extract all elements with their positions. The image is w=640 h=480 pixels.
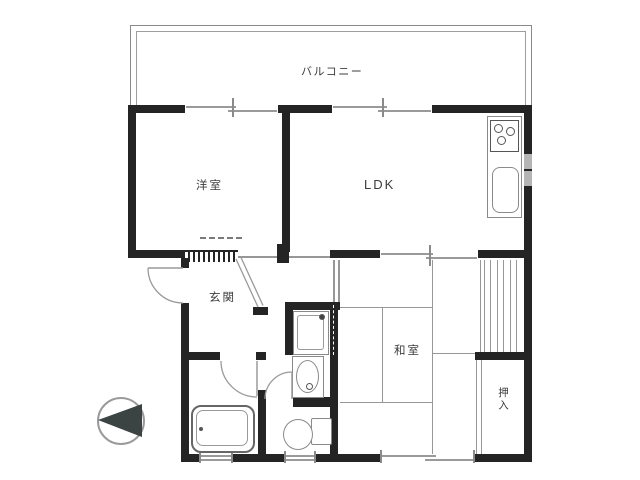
entrance-door-arc: [148, 268, 183, 303]
genkan-step-line: [236, 259, 258, 307]
toilet-door-arc: [265, 372, 292, 399]
entrance-label: 玄関: [209, 289, 236, 305]
japanese-room-label: 和室: [394, 342, 421, 358]
closet-label: 押入: [496, 387, 511, 412]
genkan-step-line: [241, 258, 263, 306]
doors-overlay: [0, 0, 640, 480]
floor-plan: バルコニー: [0, 0, 640, 480]
bathroom-door-arc: [221, 361, 257, 397]
ldk-label: LDK: [364, 177, 395, 192]
western-room-label: 洋室: [196, 177, 223, 193]
